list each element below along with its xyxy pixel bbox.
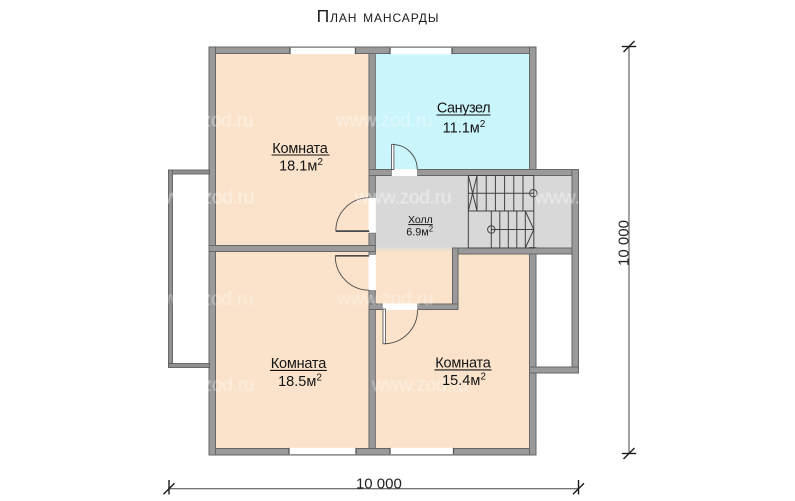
svg-text:План мансарды: План мансарды xyxy=(317,6,440,26)
svg-text:Комната: Комната xyxy=(271,356,328,372)
svg-text:11.1м2: 11.1м2 xyxy=(443,119,486,137)
svg-text:Санузел: Санузел xyxy=(437,100,490,116)
svg-text:10 000: 10 000 xyxy=(356,475,402,492)
svg-text:18.5м2: 18.5м2 xyxy=(278,373,322,391)
svg-text:www.zod.ru: www.zod.ru xyxy=(354,188,451,209)
svg-text:10 000: 10 000 xyxy=(615,220,632,266)
svg-text:Комната: Комната xyxy=(435,356,492,372)
svg-text:www.zod.ru: www.zod.ru xyxy=(156,111,253,132)
svg-text:18.1м2: 18.1м2 xyxy=(279,157,323,175)
svg-text:Комната: Комната xyxy=(272,141,329,157)
svg-text:www.zod.ru: www.zod.ru xyxy=(336,289,433,310)
svg-text:www.zod.ru: www.zod.ru xyxy=(534,188,631,209)
svg-text:www.zod.ru: www.zod.ru xyxy=(157,188,254,209)
svg-text:www.zod.ru: www.zod.ru xyxy=(335,111,432,132)
svg-text:www.zod.ru: www.zod.ru xyxy=(157,375,254,396)
svg-text:15.4м2: 15.4м2 xyxy=(442,372,486,390)
svg-text:www.zod.ru: www.zod.ru xyxy=(156,289,253,310)
svg-text:www.zod.ru: www.zod.ru xyxy=(551,375,648,396)
